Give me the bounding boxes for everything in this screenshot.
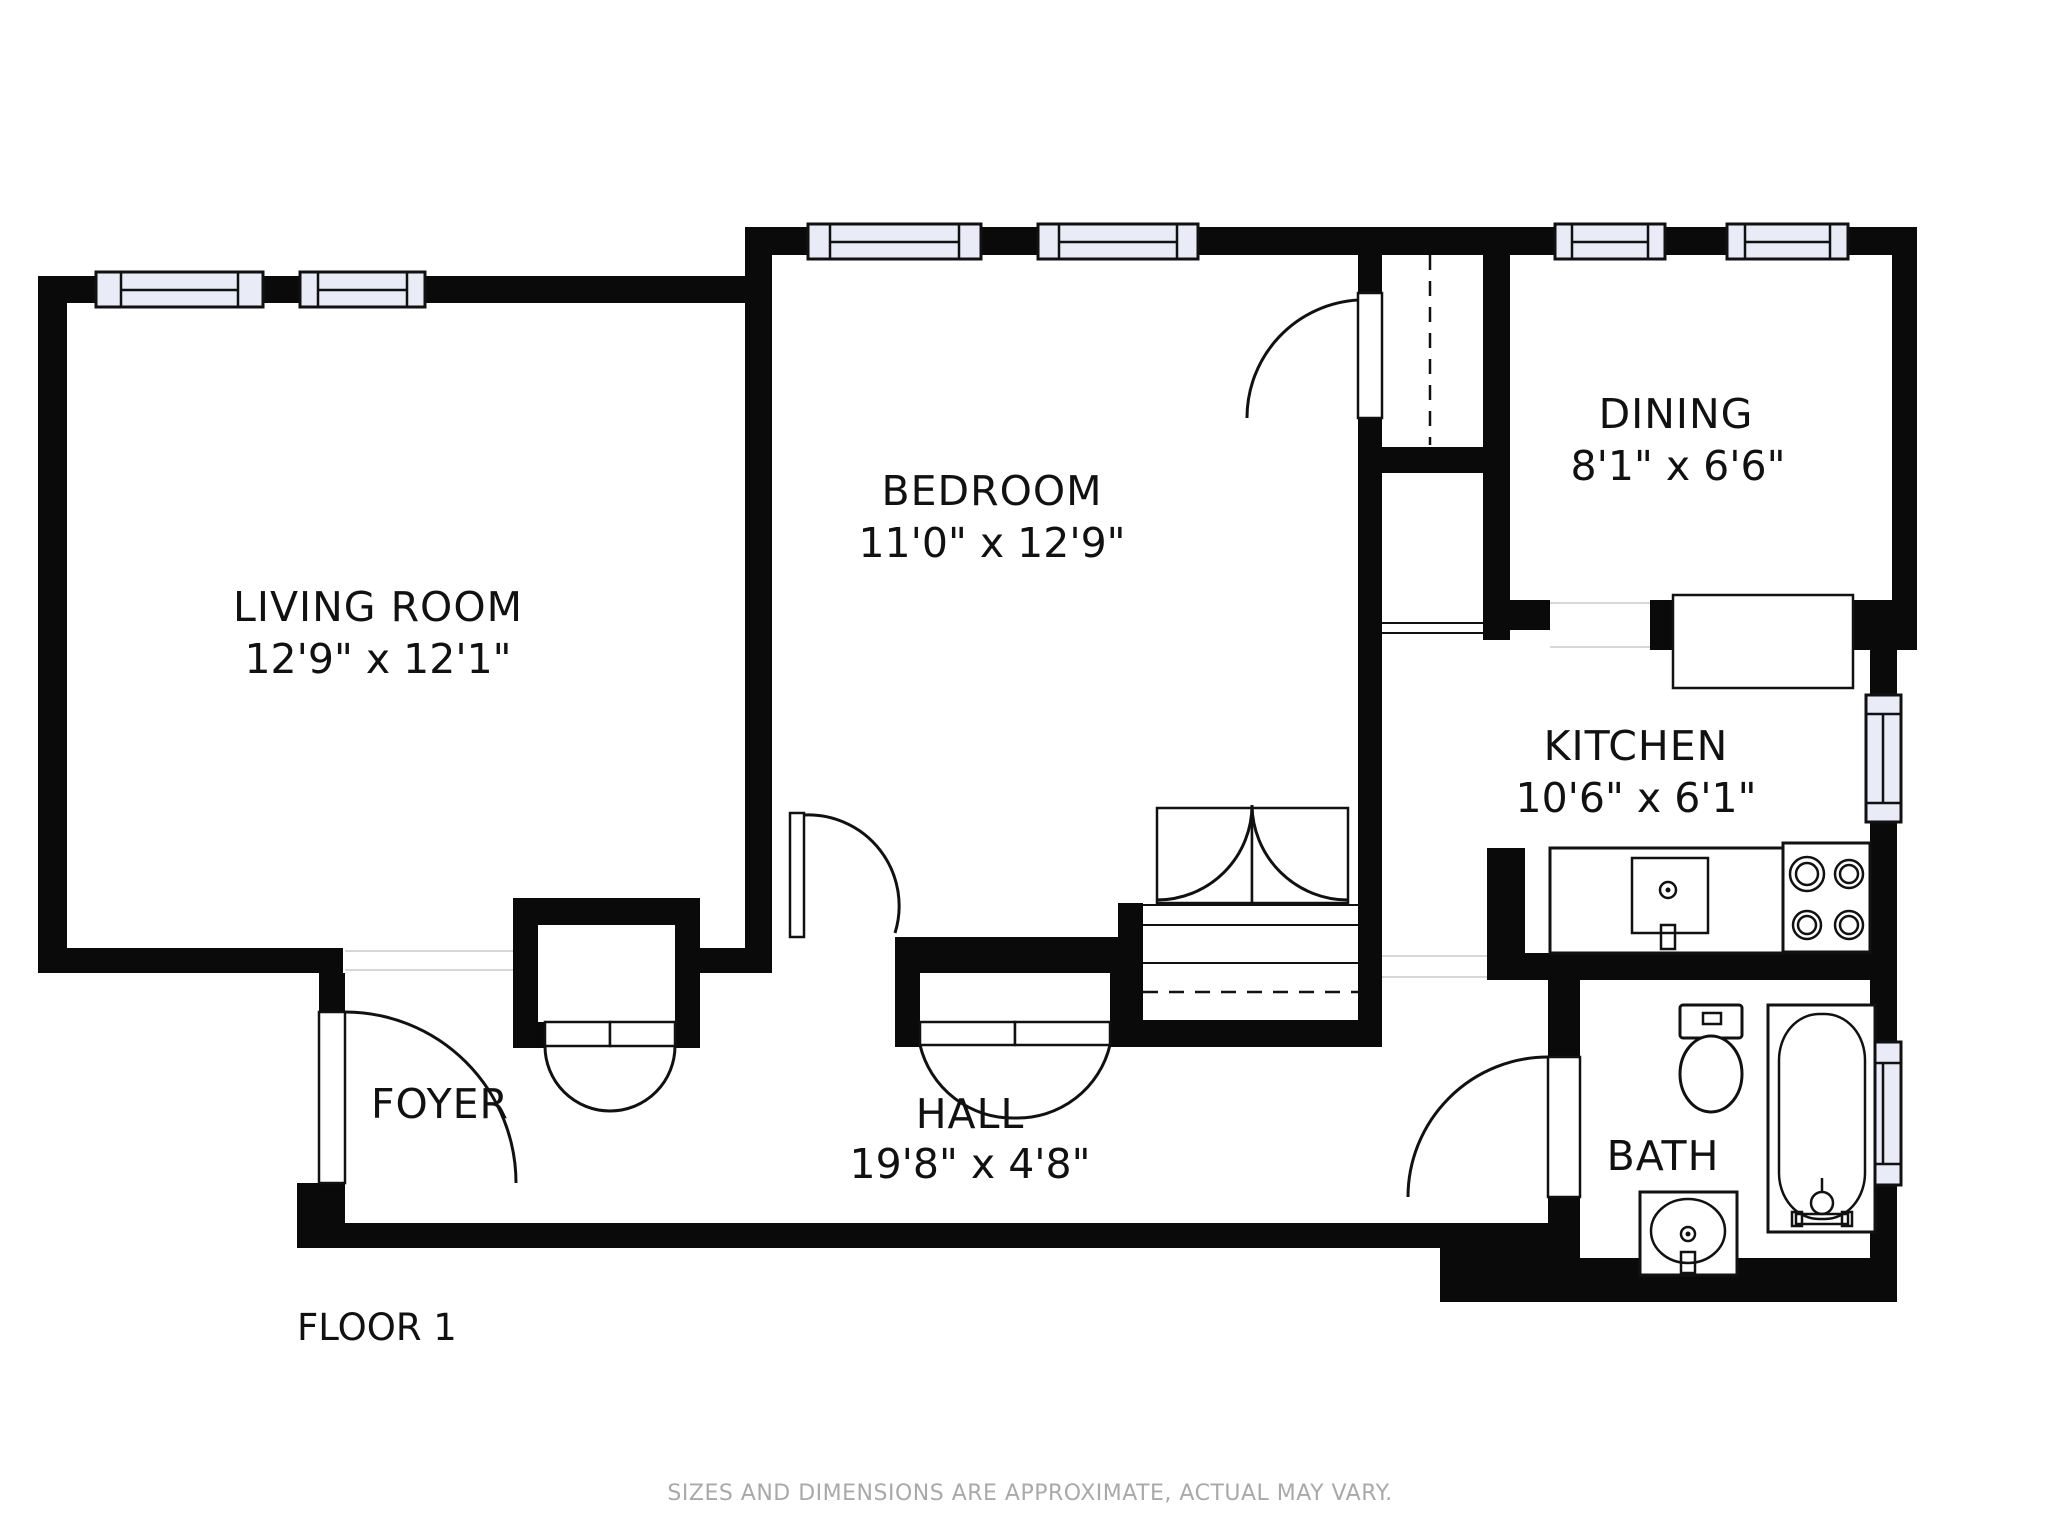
closet-front-stub-top [1358, 248, 1382, 293]
window-bedroom-1 [808, 224, 981, 259]
bath-label: BATH [1607, 1132, 1720, 1180]
hall-dims: 19'8" x 4'8" [849, 1140, 1090, 1188]
wall-connector [700, 948, 746, 973]
dining-label: DINING [1599, 390, 1754, 438]
bedroom-dims: 11'0" x 12'9" [858, 519, 1125, 567]
wall-south-hall [297, 1223, 1560, 1248]
wall-niche-stub-west [895, 973, 920, 1047]
wall-south-living [38, 948, 343, 973]
breakfast-bar [1673, 595, 1853, 688]
window-kitchen-east [1866, 695, 1901, 822]
closet-front-stub-bottom [1358, 418, 1382, 447]
wall-west-bath-upper [1548, 980, 1580, 1057]
wall-bar-stub [1650, 600, 1673, 650]
wall-hall-kitchen [1358, 447, 1382, 1047]
bedroom-door [790, 813, 899, 937]
foyer-closet-doors [545, 1022, 675, 1111]
floorplan-drawing: LIVING ROOM 12'9" x 12'1" BEDROOM 11'0" … [0, 0, 2048, 1536]
wall-south-kitchen [1525, 953, 1873, 980]
bathtub-icon [1768, 1005, 1875, 1232]
wall-foyer-sw-corner [297, 1183, 345, 1248]
window-living-1 [96, 272, 263, 307]
living-room-label: LIVING ROOM [233, 583, 523, 631]
bath-door [1408, 1057, 1580, 1197]
nook-wall-top [1358, 447, 1510, 473]
wall-east-dining [1892, 227, 1917, 650]
bedroom-closet-doors [1143, 805, 1358, 925]
doors [319, 293, 1580, 1197]
floor-label: FLOOR 1 [297, 1306, 457, 1349]
living-room-dims: 12'9" x 12'1" [244, 635, 511, 683]
nook-wall-east [1483, 473, 1510, 640]
front-closet-door [1247, 293, 1382, 418]
wall-south-bedroom [895, 937, 1118, 973]
wall-west-living [38, 276, 67, 973]
kitchen-counter [1550, 848, 1783, 953]
room-living-room: LIVING ROOM 12'9" x 12'1" [233, 583, 523, 683]
closet-foyer-interior [538, 925, 675, 1022]
kitchen-dims: 10'6" x 6'1" [1515, 774, 1756, 822]
window-living-2 [300, 272, 425, 307]
wall-west-kitchen-cap [1487, 848, 1525, 980]
hall-label: HALL [916, 1090, 1025, 1138]
wall-divider-living-bedroom [745, 227, 772, 973]
stove-icon [1783, 843, 1870, 952]
foyer-label: FOYER [371, 1080, 509, 1128]
wall-west-bath-lower [1548, 1197, 1580, 1302]
window-bedroom-2 [1038, 224, 1198, 259]
closet-bedroom-south-wall-south [1118, 1020, 1382, 1047]
wall-closet-dining [1483, 248, 1510, 447]
wall-step-dining-kitchen [1853, 600, 1917, 650]
toilet-icon [1680, 1005, 1742, 1112]
window-dining-2 [1727, 224, 1848, 259]
bath-sink-icon [1640, 1192, 1737, 1275]
floorplan-page: LIVING ROOM 12'9" x 12'1" BEDROOM 11'0" … [0, 0, 2048, 1536]
bedroom-label: BEDROOM [881, 467, 1102, 515]
room-dining: DINING 8'1" x 6'6" [1571, 390, 1786, 490]
kitchen-label: KITCHEN [1544, 722, 1729, 770]
window-dining-1 [1555, 224, 1665, 259]
room-bedroom: BEDROOM 11'0" x 12'9" [858, 467, 1125, 567]
disclaimer-text: SIZES AND DIMENSIONS ARE APPROXIMATE, AC… [667, 1481, 1392, 1506]
room-hall: HALL 19'8" x 4'8" [849, 1090, 1090, 1188]
nook-stub [1510, 600, 1550, 630]
dining-dims: 8'1" x 6'6" [1571, 442, 1786, 490]
wall-west-foyer-upper [319, 973, 345, 1012]
room-kitchen: KITCHEN 10'6" x 6'1" [1515, 722, 1756, 822]
